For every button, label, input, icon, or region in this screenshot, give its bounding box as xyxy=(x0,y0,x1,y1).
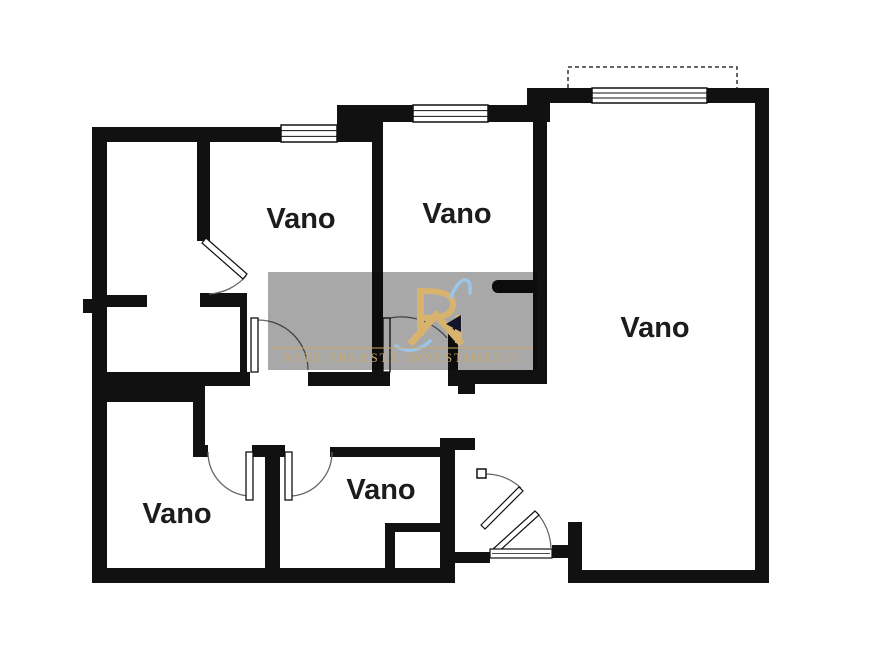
wall-segment xyxy=(552,545,568,558)
room-label: Vano xyxy=(620,312,689,344)
room-label: Vano xyxy=(346,474,415,506)
door-leaf xyxy=(246,452,253,500)
door-leaf xyxy=(202,238,247,279)
wall-segment xyxy=(458,384,475,394)
window xyxy=(592,88,707,103)
wall-segment xyxy=(385,532,395,580)
wall-segment xyxy=(193,445,208,457)
watermark-text: ASTE·PREASTE·INVESTIMENTI xyxy=(282,350,521,365)
wall-segment xyxy=(383,372,390,386)
wall-segment xyxy=(92,386,205,402)
door-leaf xyxy=(492,511,539,554)
door-swing-arc xyxy=(487,474,521,488)
wall-segment xyxy=(265,445,280,583)
window xyxy=(281,125,337,142)
wall-segment xyxy=(92,127,107,583)
door-jamb xyxy=(477,469,486,478)
door-swing-arc xyxy=(292,452,332,496)
wall-segment xyxy=(568,570,769,583)
wall-segment xyxy=(197,142,210,241)
floorplan-svg: ASTE·PREASTE·INVESTIMENTIVanoVanoVanoVan… xyxy=(0,0,880,655)
wall-segment xyxy=(83,299,92,313)
door-swing-arc xyxy=(209,276,246,294)
wall-segment xyxy=(330,447,455,457)
room-label: Vano xyxy=(422,198,491,230)
door-leaf xyxy=(481,487,523,529)
door-swing-arc xyxy=(537,513,551,548)
wall-segment xyxy=(106,295,147,307)
door-leaf xyxy=(285,452,292,500)
wall-segment xyxy=(385,523,452,532)
floorplan-canvas: ASTE·PREASTE·INVESTIMENTIVanoVanoVanoVan… xyxy=(0,0,880,655)
room-label: Vano xyxy=(266,203,335,235)
wall-segment xyxy=(200,293,247,307)
wall-segment xyxy=(455,438,475,450)
room-label: Vano xyxy=(142,498,211,530)
wall-segment xyxy=(193,402,205,447)
window xyxy=(413,105,488,122)
balcony-outline xyxy=(568,67,737,88)
wall-segment xyxy=(308,372,372,386)
wall-segment xyxy=(92,372,250,386)
door-leaf xyxy=(251,318,258,372)
wall-segment xyxy=(755,88,769,583)
wall-segment xyxy=(568,522,582,583)
door-swing-arc xyxy=(208,452,249,496)
